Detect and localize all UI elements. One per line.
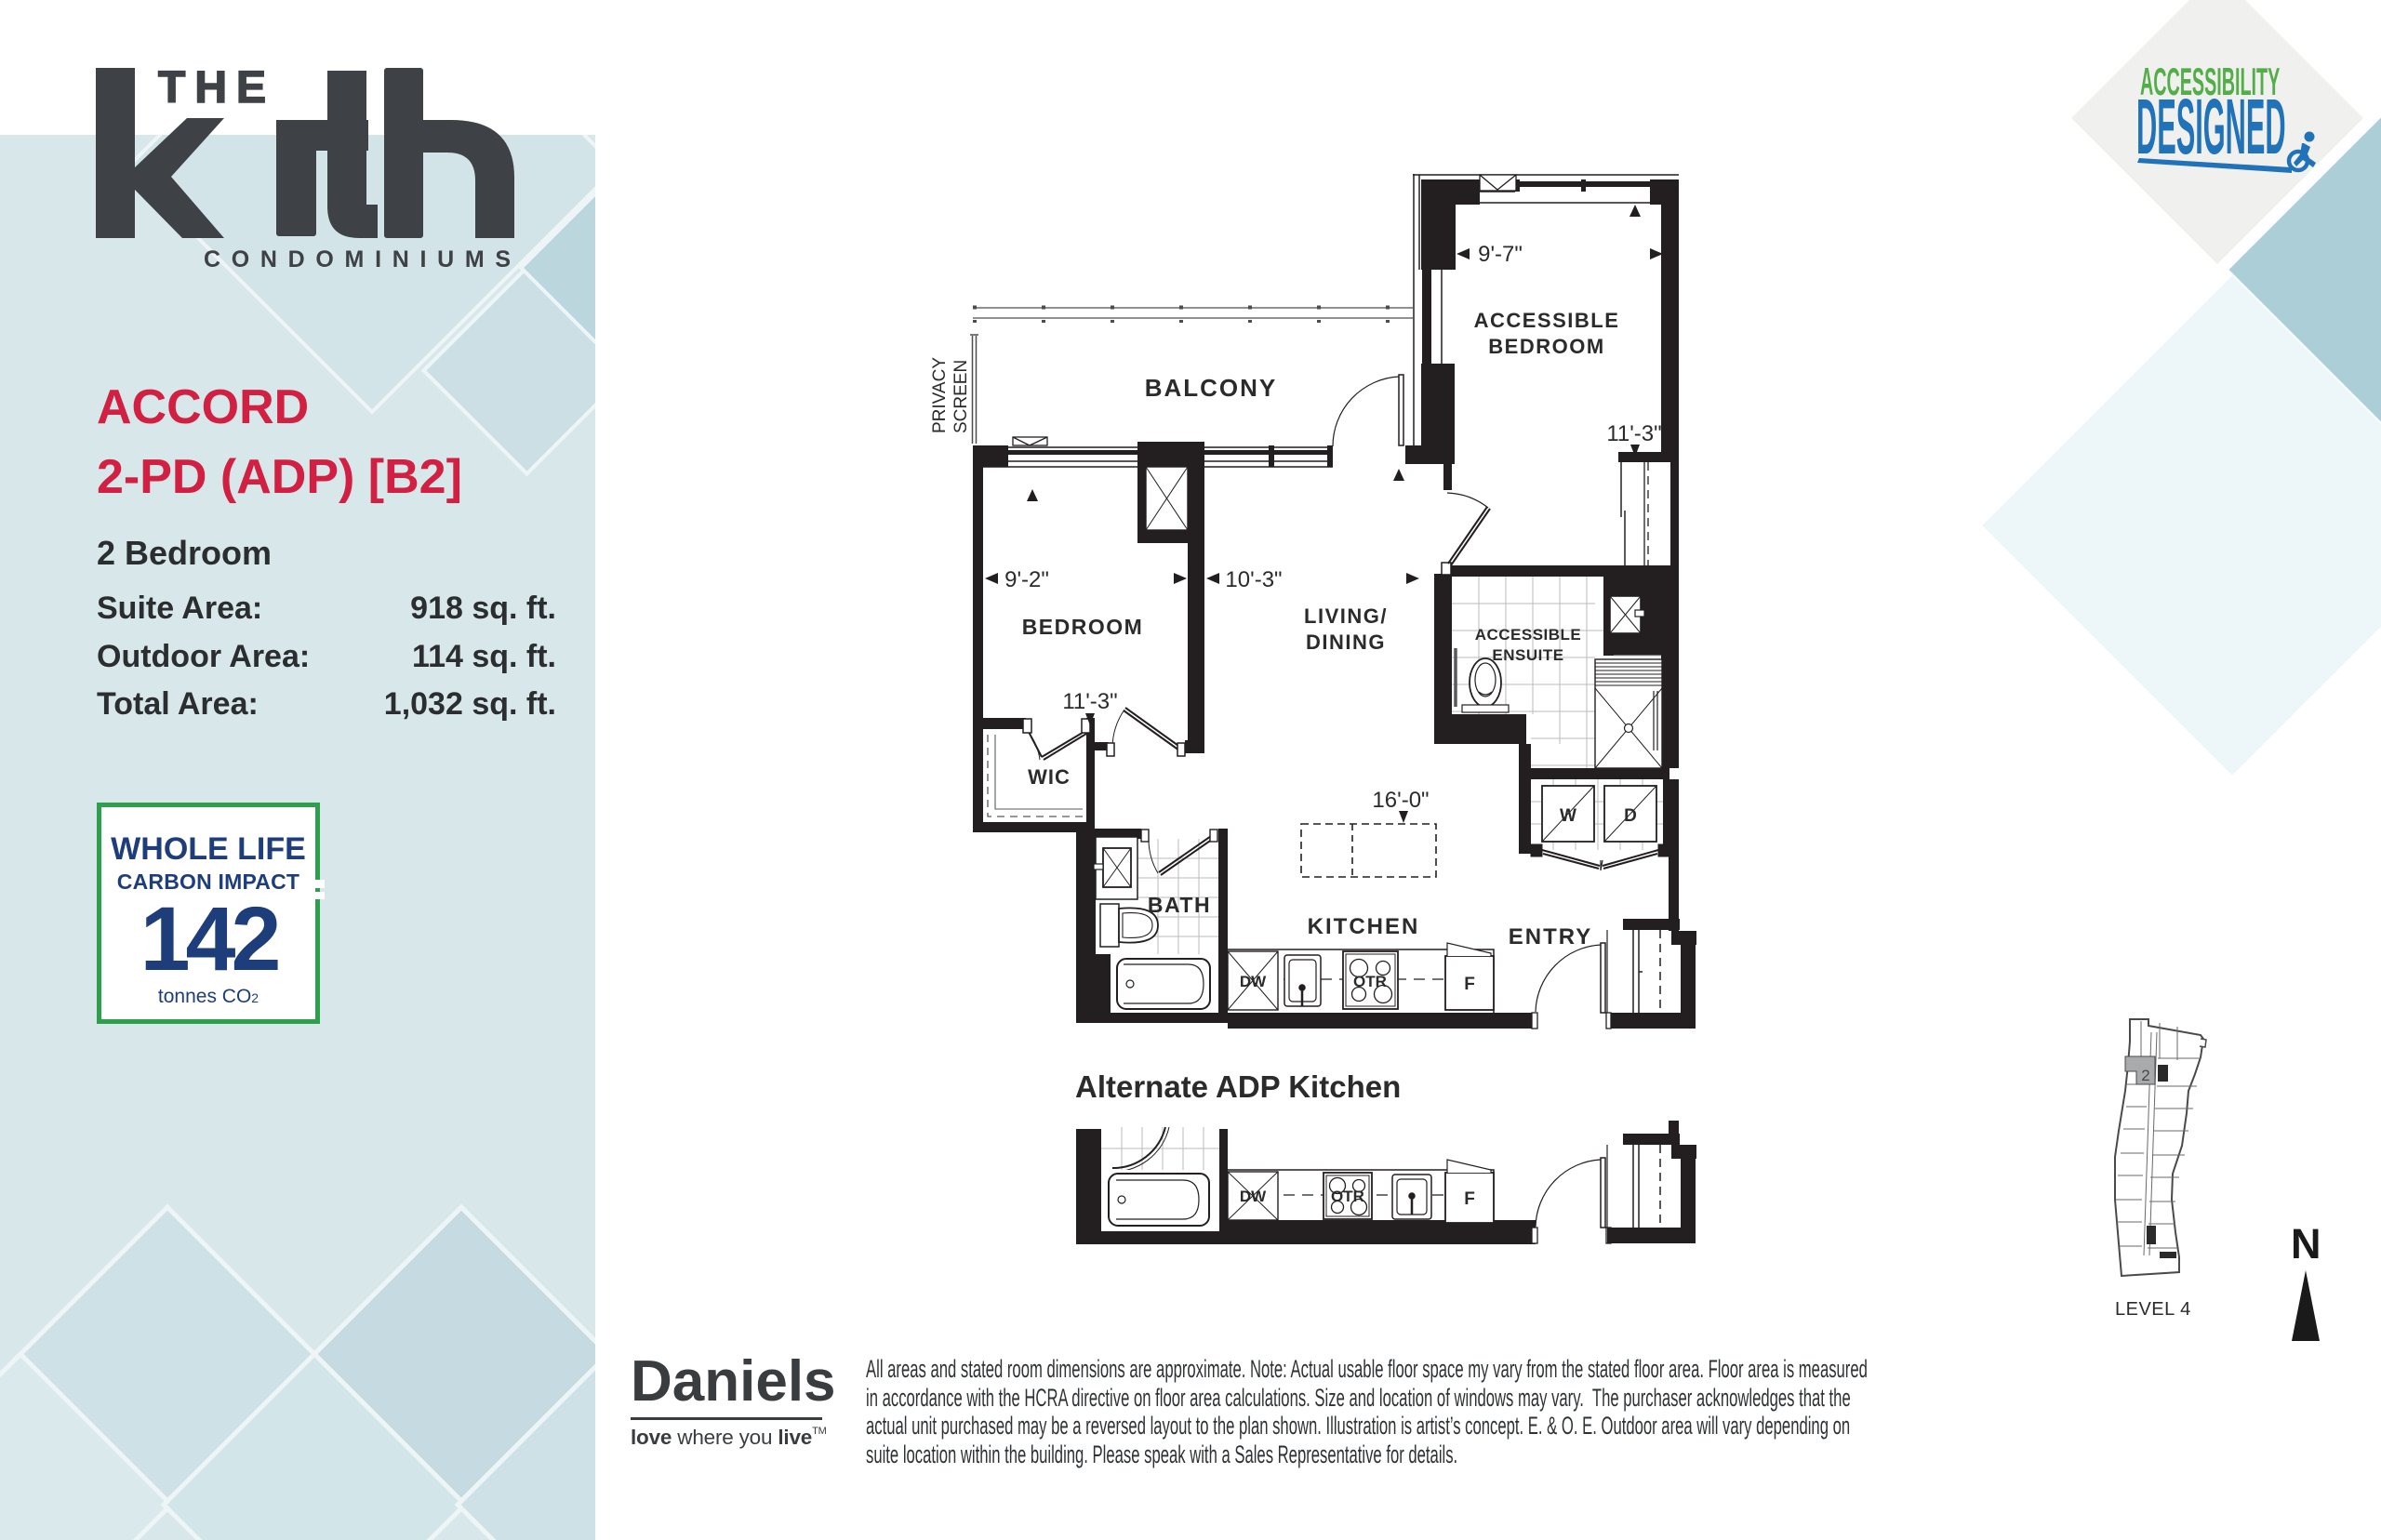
- svg-text:W: W: [1560, 806, 1576, 826]
- svg-text:OTR: OTR: [1331, 1188, 1364, 1205]
- svg-text:9'-2": 9'-2": [1004, 567, 1049, 592]
- svg-text:LEVEL 4: LEVEL 4: [2115, 1299, 2191, 1320]
- svg-text:WIC: WIC: [1028, 765, 1071, 789]
- svg-text:Alternate ADP Kitchen: Alternate ADP Kitchen: [1075, 1069, 1401, 1104]
- svg-text:ENTRY: ENTRY: [1509, 924, 1592, 949]
- svg-text:OTR: OTR: [1353, 973, 1387, 990]
- svg-text:F: F: [1464, 1189, 1475, 1209]
- svg-text:BEDROOM: BEDROOM: [1488, 335, 1604, 358]
- svg-text:11'-3": 11'-3": [1606, 421, 1661, 446]
- svg-text:9'-7": 9'-7": [1478, 242, 1523, 267]
- svg-text:PRIVACY: PRIVACY: [930, 357, 950, 433]
- svg-text:BEDROOM: BEDROOM: [1022, 615, 1144, 639]
- svg-text:DW: DW: [1240, 1188, 1267, 1205]
- svg-text:ACCESSIBLE: ACCESSIBLE: [1474, 309, 1620, 332]
- svg-text:ENSUITE: ENSUITE: [1492, 646, 1563, 664]
- svg-text:11'-3": 11'-3": [1062, 689, 1117, 714]
- svg-text:BALCONY: BALCONY: [1145, 374, 1278, 402]
- svg-text:DINING: DINING: [1306, 631, 1386, 654]
- svg-text:BATH: BATH: [1148, 893, 1211, 917]
- svg-text:10'-3": 10'-3": [1225, 567, 1282, 592]
- svg-text:KITCHEN: KITCHEN: [1308, 914, 1420, 939]
- svg-text:SCREEN: SCREEN: [951, 360, 971, 433]
- svg-text:F: F: [1464, 975, 1475, 994]
- svg-text:CONDOMINIUMS: CONDOMINIUMS: [204, 246, 522, 272]
- svg-text:THE: THE: [158, 63, 275, 113]
- svg-text:DW: DW: [1240, 973, 1267, 990]
- svg-text:ACCESSIBLE: ACCESSIBLE: [1475, 626, 1582, 644]
- svg-text:N: N: [2291, 1220, 2321, 1268]
- svg-text:2: 2: [2141, 1067, 2149, 1084]
- svg-text:16'-0": 16'-0": [1372, 788, 1429, 813]
- svg-text:LIVING/: LIVING/: [1304, 604, 1388, 628]
- svg-text:D: D: [1624, 806, 1637, 826]
